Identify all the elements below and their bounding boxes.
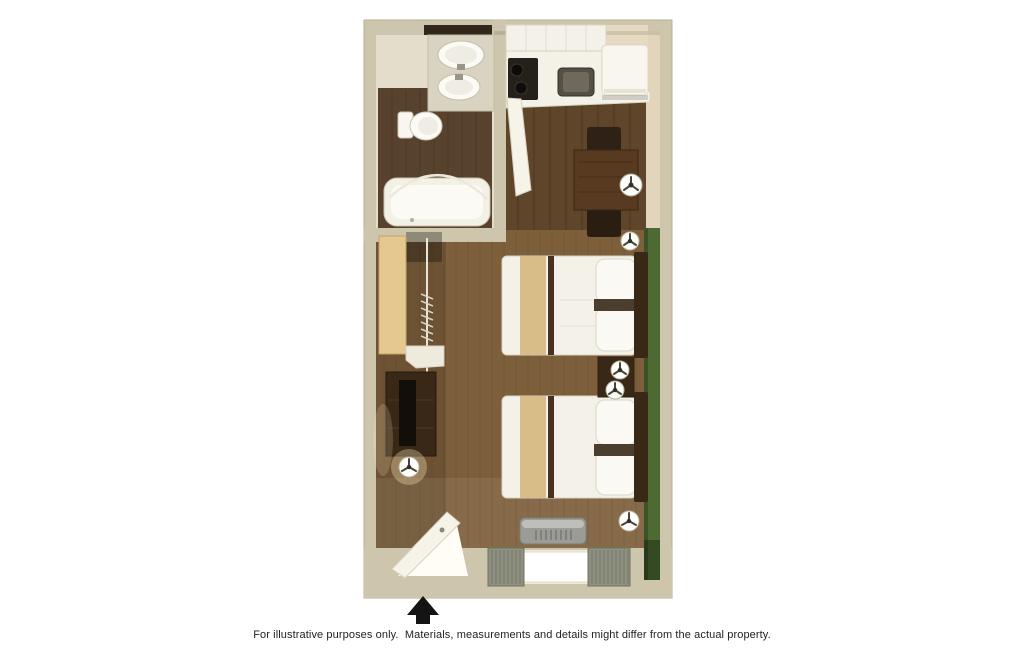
closet-interior-shadow — [406, 232, 442, 262]
bed-1-dark-throw — [594, 299, 640, 311]
faucet-2 — [455, 74, 463, 80]
nightstand-lamp-1-finial — [618, 368, 622, 372]
nightstand-lamp-2-finial — [613, 388, 617, 392]
burner-2 — [515, 82, 527, 94]
bed-2-accent-runner — [520, 396, 546, 498]
floor-lamp-lower-finial — [627, 519, 631, 523]
bathtub-drain — [410, 218, 414, 222]
ac-unit-highlight — [522, 520, 584, 528]
toilet-seat — [418, 117, 438, 135]
entrance-arrow — [407, 596, 439, 624]
tv — [399, 380, 416, 446]
dresser-lamp-finial — [407, 465, 411, 469]
upper-cabinets — [506, 25, 606, 51]
bed-2-pillow-top — [596, 400, 636, 445]
window — [520, 552, 594, 582]
dining-chair-bottom — [587, 209, 621, 237]
bed-2-dark-throw — [594, 444, 640, 456]
door-knob — [440, 528, 445, 533]
kitchen-sink-basin — [563, 72, 589, 92]
bed-1 — [502, 252, 648, 358]
burner-1 — [511, 64, 523, 76]
table-lamp-finial — [629, 183, 634, 188]
bed-1-headboard — [634, 252, 648, 358]
bathtub-basin — [391, 185, 483, 219]
refrigerator-handle — [604, 89, 646, 93]
sink-bowl-2 — [445, 79, 473, 95]
sink-bowl-1 — [445, 46, 477, 64]
floor-plan-rendering — [0, 0, 1024, 662]
wall-light-glow — [373, 404, 393, 476]
bed-2-dark-stripe — [548, 396, 554, 498]
refrigerator-shadow — [602, 95, 648, 100]
bed-1-pillow-top — [596, 259, 636, 303]
divider-wall — [494, 20, 506, 232]
mirror — [424, 25, 492, 35]
bed-1-pillow-bottom — [596, 307, 636, 351]
bed-1-accent-runner — [520, 256, 546, 355]
faucet-1 — [457, 64, 465, 70]
bed-2 — [502, 392, 648, 502]
bed-1-dark-stripe — [548, 256, 554, 355]
kitchen-back-wall-patch — [606, 25, 648, 47]
curtain-left — [488, 548, 524, 586]
disclaimer-caption: For illustrative purposes only. Material… — [0, 629, 1024, 641]
bed-2-headboard — [634, 392, 648, 502]
refrigerator — [602, 45, 648, 95]
closet-sliding-door — [379, 236, 406, 354]
floor-lamp-upper-finial — [628, 239, 632, 243]
closet-shelf-wall — [406, 346, 444, 368]
green-wall-corner-shade — [644, 540, 660, 580]
